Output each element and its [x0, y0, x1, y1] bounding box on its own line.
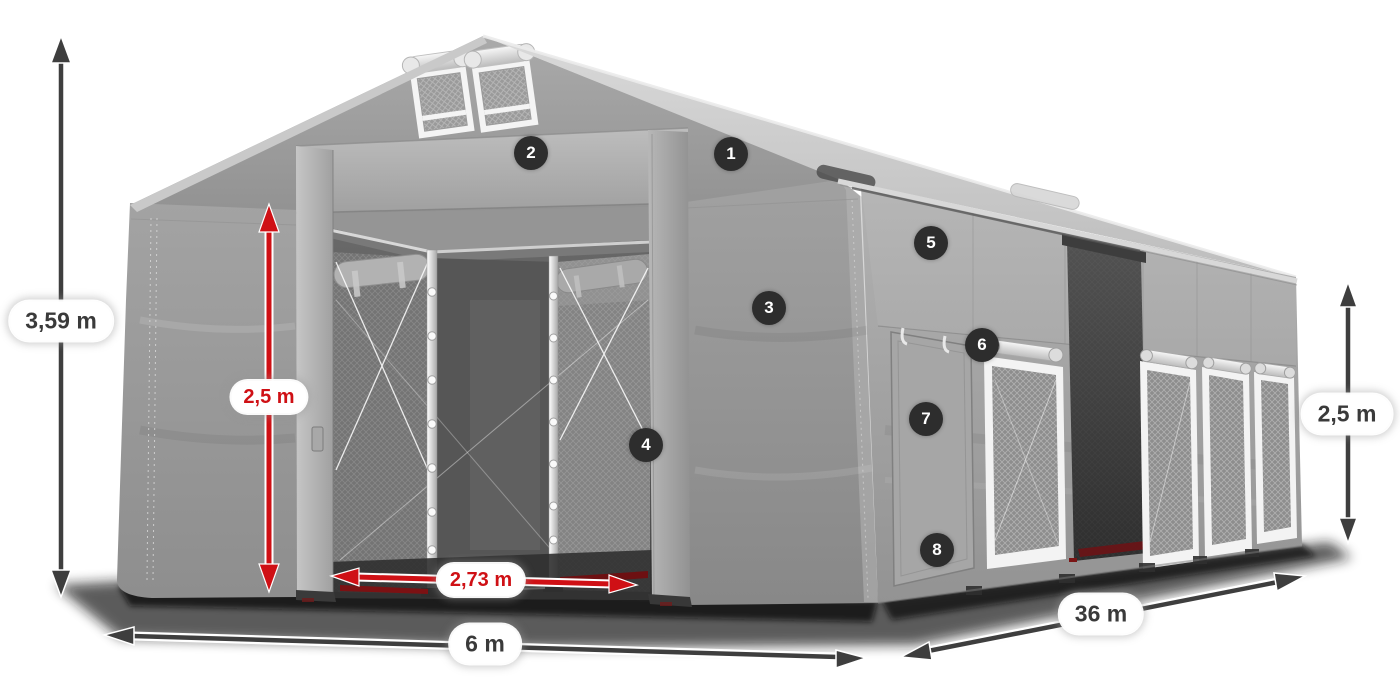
side-mesh-window-2: [1140, 349, 1199, 569]
dimension-label-length: 36 m: [1060, 595, 1142, 634]
feature-marker-8: 8: [920, 533, 954, 567]
feature-marker-4: 4: [629, 428, 663, 462]
tent-dimension-diagram: 3,59 m 2,5 m 2,73 m 6 m 36 m 2,5 m 1 2 3…: [0, 0, 1400, 700]
dimension-label-front-width: 6 m: [450, 625, 520, 664]
side-mesh-window-4: [1254, 362, 1297, 544]
door-latch-handle: [312, 427, 323, 451]
dimension-label-door-height: 2,5 m: [231, 381, 306, 413]
feature-marker-7: 7: [909, 402, 943, 436]
tent-illustration: [0, 0, 1400, 700]
feature-marker-5: 5: [914, 226, 948, 260]
side-mesh-window-3: [1202, 356, 1252, 557]
feature-marker-3: 3: [752, 291, 786, 325]
dimension-label-total-height: 3,59 m: [10, 302, 112, 341]
front-door-interior: [328, 186, 654, 602]
feature-marker-1: 1: [714, 137, 748, 171]
dimension-label-side-height: 2,5 m: [1303, 395, 1392, 434]
dimension-label-door-width: 2,73 m: [438, 564, 524, 596]
feature-marker-6: 6: [965, 328, 999, 362]
side-mesh-window-1: [984, 338, 1066, 569]
side-sliding-door-opening: [1062, 234, 1147, 561]
feature-marker-2: 2: [514, 136, 548, 170]
